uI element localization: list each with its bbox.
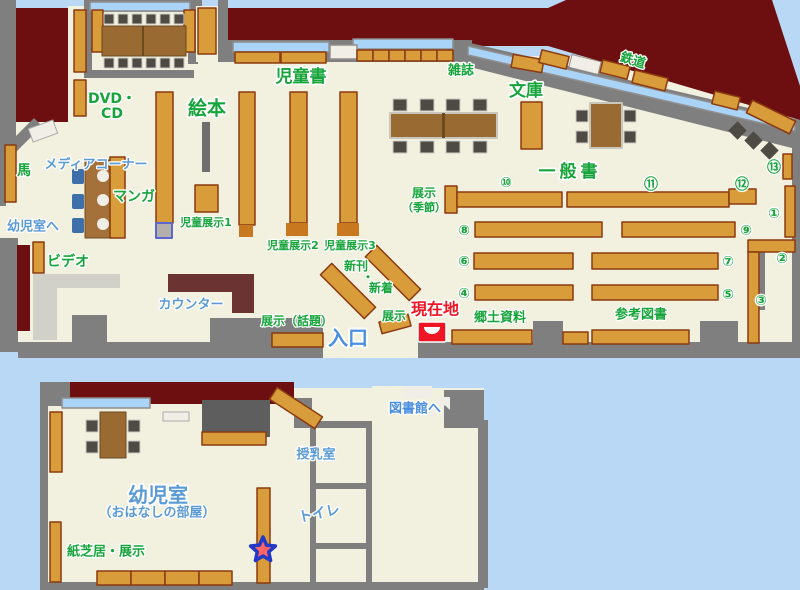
wall-b-right — [478, 420, 488, 588]
media-seat — [72, 218, 84, 233]
table-divider — [142, 26, 144, 56]
bookshelf — [475, 222, 602, 237]
chair — [118, 14, 128, 24]
gate-top — [330, 45, 357, 59]
bookshelf — [290, 92, 307, 223]
step-box — [156, 223, 172, 238]
label-new-arrivals-3: 新着 — [369, 280, 393, 295]
bookshelf — [281, 52, 326, 63]
wall-room-mid — [366, 421, 372, 586]
label-paperbacks: 文庫 — [509, 80, 543, 101]
label-dvd-cd-2: CD — [101, 106, 123, 122]
label-display-topical: 展示（話題） — [261, 313, 333, 328]
window-top-2 — [353, 39, 453, 49]
label-media-corner: メディアコーナー — [44, 157, 147, 173]
bookshelf — [199, 571, 232, 585]
chair — [624, 131, 636, 143]
chair — [473, 99, 487, 111]
label-shelf-number-13: ⑬ — [767, 159, 781, 176]
label-video: ビデオ — [47, 253, 89, 270]
shelf-end — [337, 223, 359, 236]
door-white — [404, 386, 432, 399]
label-display: 展示 — [382, 309, 406, 323]
label-magazines: 雑誌 — [447, 63, 474, 79]
label-shelf-number-10: ⑩ — [500, 175, 512, 191]
window-infant — [62, 398, 150, 408]
label-local-materials: 郷土資料 — [474, 310, 526, 326]
window-alcove — [90, 2, 190, 11]
label-reference-books: 参考図書 — [615, 307, 667, 323]
window-top-1 — [233, 42, 329, 52]
chair — [446, 141, 460, 153]
label-dvd-cd-1: DVD・ — [88, 91, 136, 107]
bookshelf — [202, 432, 266, 445]
wall-room-h2 — [310, 543, 372, 549]
chair — [86, 420, 98, 432]
bookshelf — [437, 50, 453, 61]
label-you-are-here: 現在地 — [411, 300, 459, 319]
label-display-seasonal-1: 展示 — [412, 186, 436, 200]
wall-block-a — [72, 315, 107, 343]
label-infant-room: 幼児室 — [128, 483, 188, 507]
bookshelf — [5, 145, 16, 202]
media-screen — [97, 194, 109, 206]
chair — [146, 14, 156, 24]
wall-block-c — [533, 321, 563, 353]
bookshelf — [475, 285, 573, 300]
bookshelf — [92, 10, 103, 52]
bookshelf — [622, 222, 735, 237]
wall-room-h1 — [310, 483, 372, 489]
shelf-end — [286, 223, 308, 236]
bookshelf — [592, 330, 689, 344]
chair — [118, 58, 128, 68]
label-childrens-books: 児童書 — [275, 66, 327, 87]
bookshelf — [452, 330, 532, 344]
map-canvas: DVD・CD絵本児童書雑誌文庫鉄道メディアコーナー馬マンガ幼児室へビデオ児童展示… — [0, 0, 800, 590]
display-shelf — [445, 186, 457, 213]
bookshelf — [785, 186, 795, 237]
chair — [174, 14, 184, 24]
wall-alcove-bottom — [84, 70, 194, 78]
bookshelf — [357, 50, 373, 61]
chair — [132, 14, 142, 24]
exit-gap-floor — [0, 206, 6, 238]
label-manga: マンガ — [113, 189, 155, 205]
study-table — [100, 412, 126, 458]
label-child-display-2: 児童展示2 — [266, 238, 319, 252]
wall-b-left — [40, 390, 48, 586]
chair — [420, 99, 434, 111]
label-nursing-room: 授乳室 — [296, 447, 335, 463]
bookshelf — [405, 50, 421, 61]
media-screen — [97, 218, 109, 230]
bookshelf — [235, 52, 280, 63]
display-box — [195, 185, 218, 212]
chair — [624, 110, 636, 122]
label-to-infant-room: 幼児室へ — [7, 219, 59, 235]
label-entrance: 入口 — [328, 326, 368, 350]
label-shelf-number-1: ① — [768, 206, 780, 222]
bookshelf — [97, 571, 131, 585]
gate-infant — [163, 412, 189, 421]
shelf-end — [239, 225, 253, 237]
label-shelf-number-9: ⑨ — [740, 223, 752, 239]
label-child-display-3: 児童展示3 — [323, 238, 376, 252]
chair — [576, 110, 588, 122]
wall-left-lower — [0, 238, 18, 352]
wall-left-column — [0, 0, 16, 148]
chair — [160, 14, 170, 24]
bookshelf — [74, 80, 86, 116]
bookshelf — [165, 571, 199, 585]
bookshelf — [389, 50, 405, 61]
label-counter: カウンター — [158, 298, 223, 313]
bookshelf — [521, 102, 542, 149]
chair — [446, 99, 460, 111]
chair — [104, 58, 114, 68]
chair — [160, 58, 170, 68]
bookshelf — [748, 240, 795, 252]
kamishibai-stand — [202, 122, 210, 172]
label-picture-books: 絵本 — [188, 97, 226, 120]
chair — [576, 131, 588, 143]
bookshelf — [239, 92, 255, 225]
chair — [393, 141, 407, 153]
chair — [128, 441, 140, 453]
label-story-room: （おはなしの部屋） — [98, 505, 215, 521]
media-seat — [72, 194, 84, 209]
label-shelf-number-2: ② — [776, 251, 788, 267]
bookshelf — [198, 8, 216, 54]
bookshelf — [457, 192, 562, 207]
bookshelf — [421, 50, 437, 61]
table-divider — [442, 113, 445, 138]
label-kamishibai-display: 紙芝居・展示 — [67, 544, 145, 560]
label-shelf-number-11: ⑪ — [644, 176, 658, 193]
chair — [86, 441, 98, 453]
chair — [174, 58, 184, 68]
label-general-books: 一般書 — [539, 161, 602, 182]
chair — [420, 141, 434, 153]
chair — [146, 58, 156, 68]
reading-table — [590, 103, 622, 148]
bookshelf — [156, 92, 173, 223]
chair — [393, 99, 407, 111]
label-shelf-number-4: ④ — [458, 286, 470, 302]
bookshelf — [563, 332, 588, 344]
bookshelf — [50, 522, 61, 582]
wall-room-left — [310, 421, 316, 586]
label-to-library: 図書館へ — [389, 401, 441, 417]
bookshelf — [373, 50, 389, 61]
outside-left-block — [14, 8, 68, 122]
chair — [132, 58, 142, 68]
label-shelf-number-6: ⑥ — [458, 254, 470, 270]
label-shelf-number-8: ⑧ — [458, 223, 470, 239]
chair — [104, 14, 114, 24]
label-shelf-number-5: ⑤ — [722, 287, 734, 303]
bookshelf — [131, 571, 165, 585]
label-child-display-1: 児童展示1 — [179, 215, 232, 229]
library-floor-map: DVD・CD絵本児童書雑誌文庫鉄道メディアコーナー馬マンガ幼児室へビデオ児童展示… — [0, 0, 800, 590]
label-display-seasonal-2: （季節） — [402, 200, 446, 214]
label-shelf-number-12: ⑫ — [735, 176, 749, 193]
bookshelf — [474, 253, 573, 269]
chair — [128, 420, 140, 432]
bookshelf — [272, 333, 323, 347]
bookshelf — [567, 192, 729, 207]
label-shelf-number-3: ③ — [755, 293, 767, 309]
chair — [473, 141, 487, 153]
bookshelf — [592, 285, 718, 300]
bookshelf — [74, 10, 86, 72]
bookshelf — [592, 253, 718, 269]
bookshelf — [340, 92, 357, 223]
wall-block-d — [700, 321, 738, 353]
label-shelf-number-7: ⑦ — [722, 254, 734, 270]
bookshelf — [783, 154, 792, 179]
bookshelf — [50, 412, 62, 472]
outside-left-strip — [17, 245, 30, 331]
bookshelf — [33, 242, 44, 273]
label-horse: 馬 — [17, 163, 31, 179]
